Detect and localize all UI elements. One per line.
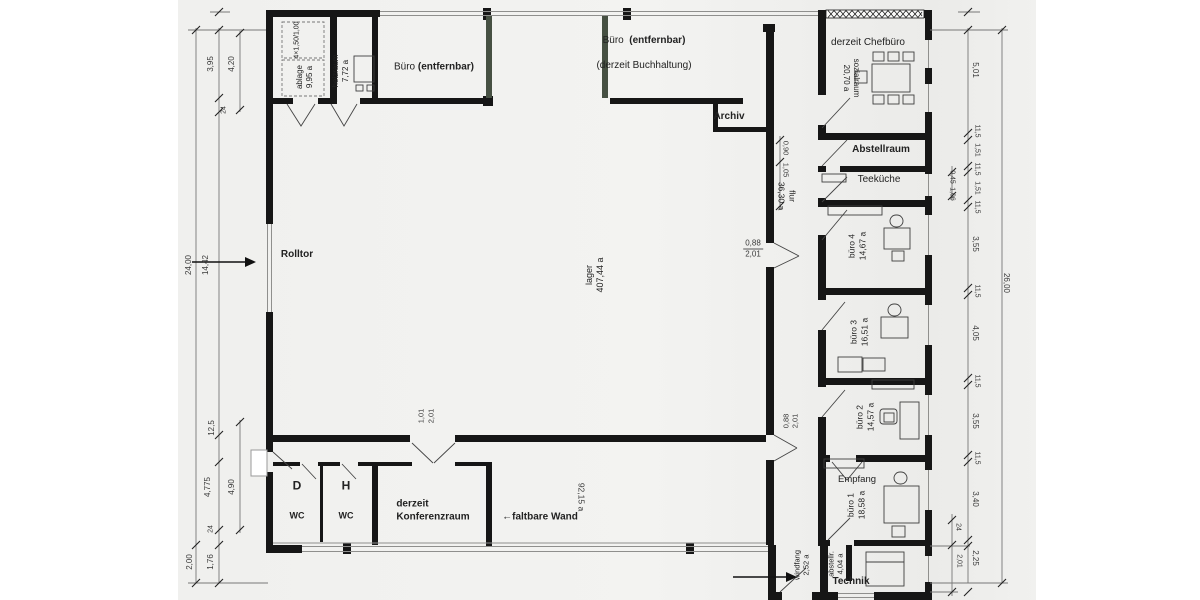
floor-plan-scan: 4×1,50/1,00 ablage 9,95 a heizraum 7,72 … [0,0,1200,600]
dim-right-11-5f: 11,5 [972,451,981,464]
dim-left-1-76: 1,76 [206,554,216,570]
room-label-windfang: windfang 2,52 a [793,550,812,580]
dim-left-overall: 24,00 [184,255,194,275]
dim-right-3-55b: 3,55 [970,413,980,429]
dim-right-4-05: 4,05 [970,325,980,341]
dim-left-14-42: 14,42 [201,255,211,275]
faltbare-wand-label: ←faltbare Wand [502,499,578,524]
dim-left-4-20: 4,20 [227,56,237,72]
dim-left-2-00: 2,00 [185,554,195,570]
room-label-buero1: büro 1 18,58 a [845,491,866,519]
dim-right-11-5a: 11,5 [972,124,981,137]
dim-right-2-25: 2,25 [970,550,980,566]
dim-right-1-51a: 1,51 [972,143,981,157]
walls [266,8,932,600]
dim-right-overall: 26,00 [1001,273,1011,293]
room-label-buero4: büro 4 14,67 a [846,232,867,260]
dim-right-11-5d: 11,5 [972,284,981,297]
dim-left-24a: 24 [221,106,230,114]
room-label-abstellr: abstellr. 4,04 a [827,551,846,577]
room-label-teekueche: Teeküche [858,174,901,187]
area-label-92: 92,15 a [576,483,587,511]
rolltor-label: Rolltor [281,249,313,262]
room-label-buero3: büro 3 16,51 a [848,318,869,346]
room-label-buero2: büro 2 14,57 a [854,403,875,431]
door-dim-strip-w: 0,88 [781,414,790,429]
flur-dim-a: 0,90 [781,141,790,156]
dim-right-24: 24 [953,523,962,531]
room-label-sozialraum: sozialraum 20,70 a [841,59,861,98]
room-label-technik: Technik [832,576,869,589]
room-label-flur: flur 36,30 a [776,182,797,210]
dim-right-11-5c: 11,5 [972,200,981,213]
left-arrow-icon: ← [502,511,512,522]
room-label-heizraum: heizraum 7,72 a [331,55,351,88]
room-label-abstellraum: Abstellraum [852,144,910,157]
room-label-archiv: Archiv [713,111,744,124]
shelf-note-label: 4×1,50/1,00 [294,21,303,58]
dim-right-1-06: 1,06 [947,187,956,201]
dim-left-4-90: 4,90 [227,479,237,495]
door-dim-strip-h: 2,01 [790,414,799,429]
door-dim-hall: 0,882,01 [743,229,763,270]
plan-graphics [0,0,1200,600]
entrance-arrow [733,572,797,582]
dim-left-4-775: 4,775 [203,477,213,497]
dim-right-11-5b: 11,5 [972,162,981,175]
room-label-buchhaltung: Büro (entfernbar) (derzeit Buchhaltung) [596,22,691,85]
room-label-ablage: ablage 9,95 a [295,65,315,89]
dim-left-24b: 24 [208,525,217,533]
room-label-chefbuero: derzeit Chefbüro [831,37,905,50]
dim-right-3-55a: 3,55 [970,236,980,252]
dim-left-3-95: 3,95 [206,56,216,72]
dim-right-5-01: 5,01 [970,62,980,78]
room-label-lager: lager 407,44 a [584,257,607,292]
dim-right-3-40: 3,40 [970,491,980,507]
dim-right-2-01: 2,01 [954,554,963,568]
steel-column-walls [486,16,608,98]
room-label-wc-d: D WC [290,458,305,541]
hatched-wall [826,10,924,18]
door-dim-konf-w: 1,01 [416,409,425,424]
dimension-lines [188,12,1008,596]
dim-right-0-45: 0,45 [947,170,956,184]
room-label-konferenzraum: derzeit Konferenzraum [396,499,469,524]
dim-left-12-5: 12,5 [207,420,217,436]
room-label-empfang: Empfang [838,474,876,486]
door-dim-konf-h: 2,01 [426,409,435,424]
room-label-buero-entfernbar: Büro (entfernbar) [394,49,474,74]
room-label-wc-h: H WC [339,458,354,541]
dim-right-1-51b: 1,51 [972,181,981,195]
flur-dim-b: 1,05 [781,163,790,178]
dim-right-11-5e: 11,5 [972,374,981,387]
